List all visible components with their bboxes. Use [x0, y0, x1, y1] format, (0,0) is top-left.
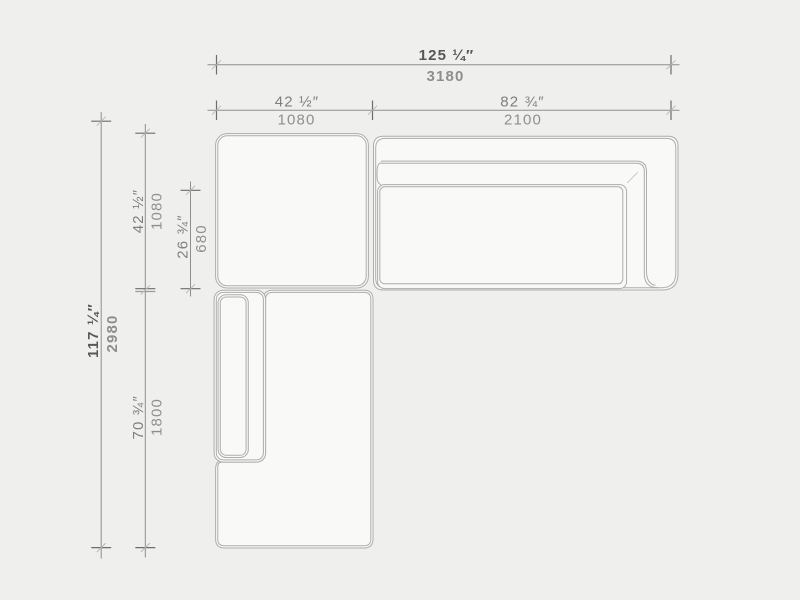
svg-text:680: 680: [193, 224, 210, 252]
svg-text:117 ¼″: 117 ¼″: [85, 303, 102, 358]
svg-text:82 ¾″: 82 ¾″: [500, 93, 544, 110]
svg-text:125 ¼″: 125 ¼″: [419, 47, 475, 64]
svg-text:70 ¾″: 70 ¾″: [130, 395, 147, 439]
svg-text:1080: 1080: [278, 111, 316, 128]
svg-text:42 ½″: 42 ½″: [275, 93, 319, 110]
svg-text:1080: 1080: [148, 192, 165, 230]
svg-text:2100: 2100: [504, 111, 542, 128]
svg-text:42 ½″: 42 ½″: [130, 189, 147, 233]
svg-text:2980: 2980: [104, 315, 121, 353]
svg-text:26 ¾″: 26 ¾″: [174, 214, 191, 258]
svg-text:3180: 3180: [427, 68, 465, 85]
svg-text:1800: 1800: [148, 398, 165, 436]
